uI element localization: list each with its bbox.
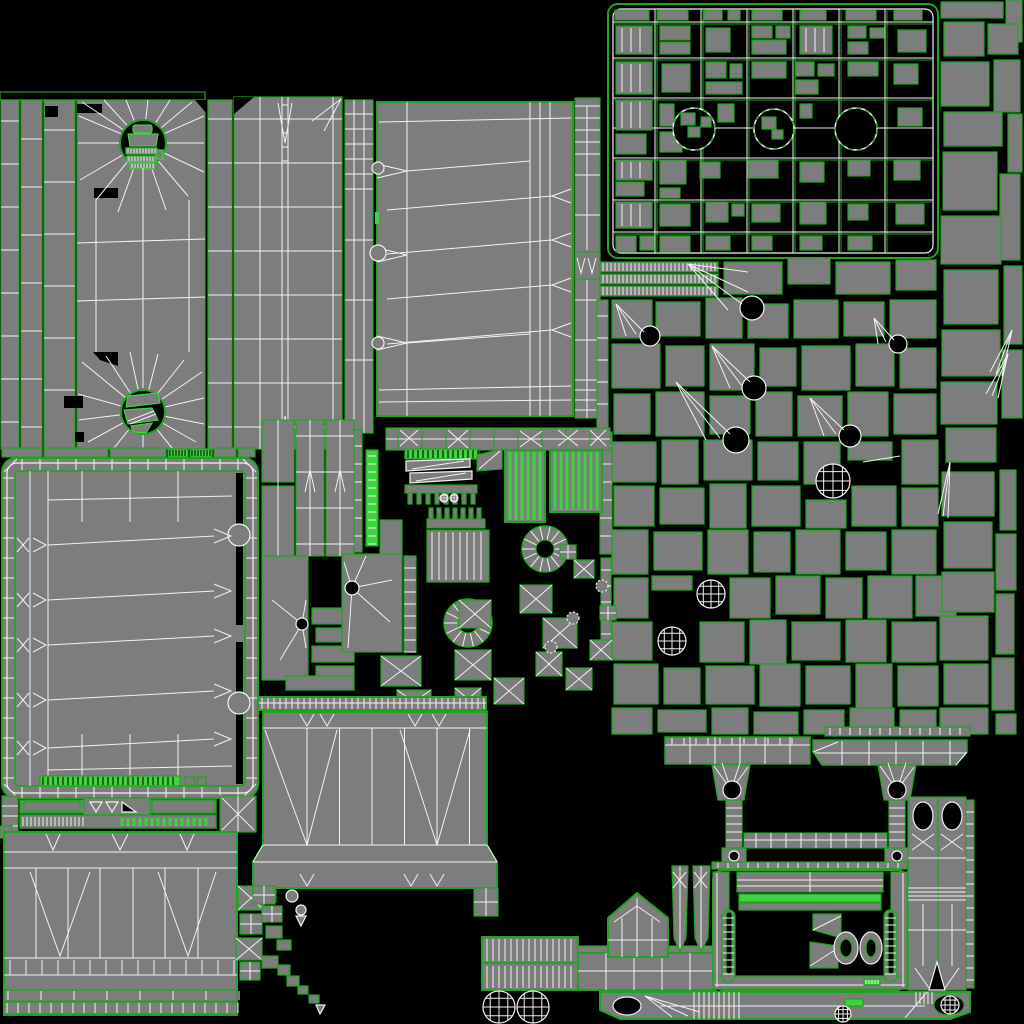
uv-texture-atlas (0, 0, 1024, 1024)
uv-island (710, 484, 746, 528)
uv-island (44, 448, 108, 457)
uv-island (660, 236, 690, 252)
uv-island (902, 440, 938, 484)
uv-island (1, 100, 19, 449)
uv-circle (372, 337, 384, 349)
uv-island (896, 204, 924, 224)
uv-island (825, 727, 970, 736)
uv-island (800, 162, 824, 182)
uv-island (996, 594, 1014, 654)
uv-ellipse (866, 939, 876, 957)
uv-island (706, 236, 730, 250)
uv-island (309, 995, 319, 1003)
uv-circle (228, 692, 250, 714)
uv-circle (567, 612, 579, 624)
uv-island (844, 302, 884, 336)
uv-comb-teeth (453, 508, 457, 519)
uv-island (724, 262, 782, 294)
uv-island (615, 10, 649, 20)
uv-island (848, 236, 872, 250)
uv-island (654, 532, 702, 570)
uv-island (704, 10, 722, 20)
uv-island (681, 113, 695, 125)
uv-comb-teeth (426, 493, 430, 504)
uv-island (706, 666, 754, 704)
uv-island (718, 104, 734, 122)
uv-island (898, 666, 938, 706)
uv-island (662, 64, 690, 92)
uv-island (732, 204, 744, 216)
uv-island (806, 500, 846, 528)
uv-island (752, 486, 800, 526)
uv-island (345, 100, 373, 433)
uv-island (40, 776, 180, 786)
uv-island (752, 40, 786, 54)
uv-island (826, 578, 862, 618)
uv-comb-teeth (417, 493, 421, 504)
uv-island (988, 24, 1018, 54)
uv-island (612, 442, 656, 482)
uv-island (846, 532, 886, 570)
uv-island (845, 999, 863, 1006)
uv-island (752, 26, 772, 38)
uv-island (156, 150, 163, 159)
uv-island (752, 10, 782, 20)
uv-island (800, 26, 832, 54)
uv-island (612, 622, 652, 660)
uv-island (238, 448, 255, 457)
uv-island (94, 188, 118, 198)
uv-circle (892, 851, 902, 861)
uv-comb-teeth (471, 493, 475, 504)
uv-island (616, 26, 652, 54)
uv-island (612, 344, 660, 388)
uv-island (266, 926, 282, 938)
uv-island-poly (128, 134, 158, 146)
uv-island (796, 80, 818, 94)
uv-island (802, 346, 850, 390)
uv-island (277, 940, 291, 950)
uv-island (762, 117, 776, 129)
uv-island (616, 236, 636, 252)
uv-island (902, 488, 938, 526)
pillar-hole (723, 781, 741, 799)
uv-island (798, 396, 842, 436)
uv-island (896, 260, 936, 290)
uv-island (616, 100, 652, 130)
uv-circle (370, 245, 386, 261)
uv-island (616, 202, 652, 228)
uv-island (943, 152, 997, 210)
uv-island (758, 442, 798, 480)
uv-circle (296, 618, 308, 630)
uv-island (660, 188, 680, 198)
uv-island (185, 777, 195, 785)
uv-island (700, 162, 720, 178)
uv-island (848, 26, 866, 38)
uv-island (2, 448, 42, 457)
uv-comb-teeth (462, 493, 466, 504)
uv-island (660, 204, 690, 226)
uv-island (1008, 114, 1022, 172)
uv-circle (640, 326, 660, 346)
uv-island (752, 204, 780, 222)
uv-island (656, 392, 704, 436)
uv-island (706, 298, 742, 338)
uv-island (152, 800, 214, 813)
uv-island (888, 912, 894, 974)
uv-island (262, 956, 278, 968)
uv-island (800, 202, 826, 224)
uv-island (286, 676, 354, 690)
uv-island (848, 62, 878, 76)
uv-island (898, 30, 926, 52)
uv-island (800, 104, 812, 118)
uv-island (640, 236, 654, 250)
uv-island (942, 572, 994, 612)
uv-island (614, 578, 648, 618)
uv-circle (545, 641, 557, 653)
uv-island (739, 903, 881, 910)
uv-circle (345, 581, 359, 595)
uv-island (941, 62, 989, 106)
uv-island (992, 658, 1014, 710)
uv-island (750, 620, 786, 664)
uv-island (870, 28, 884, 38)
uv-island (4, 1002, 237, 1014)
uv-ellipse (942, 802, 962, 830)
uv-island (612, 530, 648, 574)
pillar-hole (888, 781, 906, 799)
uv-island (708, 530, 748, 574)
uv-island (892, 622, 936, 662)
uv-island (236, 473, 243, 625)
uv-island (730, 578, 770, 618)
uv-island (550, 450, 602, 512)
uv-island (852, 486, 896, 526)
uv-island (846, 620, 886, 662)
uv-island (800, 10, 826, 20)
uv-island (664, 668, 700, 704)
uv-atlas-canvas (0, 0, 1024, 1024)
uv-island (660, 488, 704, 524)
uv-island (660, 104, 674, 126)
uv-island (287, 976, 299, 986)
uv-island (616, 160, 652, 180)
uv-island (848, 160, 870, 176)
uv-island (890, 300, 936, 338)
uv-island (614, 486, 654, 526)
uv-comb-teeth (408, 493, 412, 504)
uv-island (730, 64, 742, 78)
uv-island (756, 392, 792, 436)
uv-island (662, 440, 698, 484)
uv-island (77, 104, 102, 113)
bottom-left-panel (4, 832, 237, 1015)
uv-island (405, 485, 477, 493)
uv-island (658, 710, 706, 732)
mid-large-panel (377, 102, 573, 416)
uv-island (892, 530, 936, 574)
uv-island (616, 62, 652, 94)
uv-island (380, 520, 402, 554)
uv-island (616, 182, 644, 196)
uv-island (776, 576, 820, 614)
uv-comb-teeth (435, 493, 439, 504)
uv-comb-teeth (461, 508, 465, 519)
uv-island (706, 62, 726, 78)
uv-island (848, 204, 868, 220)
uv-island (944, 22, 984, 56)
uv-island (752, 62, 786, 78)
uv-comb-teeth (477, 508, 481, 519)
uv-island (941, 216, 1001, 264)
uv-island (1000, 174, 1020, 260)
uv-island (898, 108, 922, 126)
uv-island (726, 912, 732, 974)
uv-island (760, 664, 800, 706)
uv-island (278, 965, 290, 975)
uv-island (940, 616, 988, 660)
uv-island (946, 428, 996, 462)
uv-island (110, 448, 166, 457)
uv-island (214, 448, 236, 457)
uv-island (597, 300, 608, 430)
uv-island (900, 348, 936, 388)
uv-island (24, 802, 80, 811)
uv-island (792, 622, 840, 660)
uv-circle (372, 162, 384, 174)
uv-island (666, 346, 704, 386)
top-edge-strip (0, 92, 205, 100)
uv-island (701, 117, 711, 127)
uv-island (788, 258, 830, 284)
uv-island (796, 530, 840, 574)
uv-island (4, 990, 237, 1001)
uv-circle (729, 851, 739, 861)
uv-island (894, 64, 918, 84)
uv-island (894, 160, 920, 180)
uv-island (966, 800, 974, 988)
uv-island (133, 125, 152, 133)
uv-ellipse (613, 997, 641, 1015)
uv-comb-teeth (445, 508, 449, 519)
uv-island (772, 130, 783, 139)
uv-island (427, 519, 485, 528)
uv-island (944, 270, 998, 324)
uv-island (64, 396, 83, 408)
uv-island (868, 576, 912, 618)
uv-island (658, 10, 688, 20)
uv-island (706, 28, 730, 52)
uv-island (996, 714, 1016, 734)
uv-island (848, 42, 868, 54)
uv-island (794, 300, 838, 338)
uv-island (728, 10, 740, 20)
uv-island (800, 236, 822, 250)
uv-island (894, 394, 936, 434)
uv-island (1000, 470, 1016, 530)
uv-island (894, 10, 922, 20)
uv-island (836, 262, 890, 294)
uv-island (616, 134, 646, 154)
uv-island (944, 522, 992, 568)
uv-island (614, 394, 650, 434)
uv-island (754, 712, 798, 734)
uv-island (776, 26, 790, 38)
uv-comb-teeth (429, 508, 433, 519)
uv-island (739, 894, 881, 902)
uv-island (712, 708, 748, 734)
uv-island (1004, 266, 1022, 344)
uv-comb-teeth (469, 508, 473, 519)
uv-island (660, 26, 690, 40)
uv-island (208, 100, 232, 449)
uv-island (796, 62, 814, 76)
uv-island (944, 664, 988, 704)
uv-island (806, 666, 850, 704)
uv-island (688, 127, 700, 137)
uv-circle (742, 376, 766, 400)
uv-island (706, 202, 728, 222)
uv-island (665, 737, 810, 764)
uv-comb-teeth (437, 508, 441, 519)
uv-ellipse (913, 802, 933, 830)
uv-island (614, 664, 658, 704)
uv-island (994, 60, 1020, 112)
gear-ring-1 (536, 540, 554, 558)
uv-island (700, 622, 744, 662)
uv-island (941, 2, 1003, 18)
uv-island (856, 664, 892, 708)
uv-island (21, 100, 42, 449)
uv-island (298, 986, 308, 994)
uv-island (45, 106, 58, 117)
uv-island (818, 64, 834, 76)
uv-circle (286, 890, 298, 902)
uv-island (660, 42, 690, 54)
uv-island (612, 708, 652, 734)
uv-ellipse (840, 939, 852, 957)
uv-island (760, 348, 796, 386)
uv-island (656, 302, 700, 336)
uv-island (660, 160, 686, 184)
uv-island (752, 236, 772, 250)
uv-island (748, 160, 778, 178)
uv-island (856, 344, 894, 386)
uv-island (375, 212, 379, 224)
uv-circle (228, 524, 250, 546)
uv-circle (596, 580, 608, 592)
uv-circle (296, 905, 306, 915)
uv-island (944, 112, 1002, 146)
uv-island (75, 432, 84, 442)
uv-island (706, 82, 742, 94)
uv-island (846, 10, 876, 20)
uv-island (996, 534, 1016, 590)
uv-island (652, 576, 692, 590)
uv-island (198, 777, 206, 785)
uv-island (427, 530, 489, 582)
uv-island (754, 532, 790, 572)
uv-circle (740, 296, 764, 320)
